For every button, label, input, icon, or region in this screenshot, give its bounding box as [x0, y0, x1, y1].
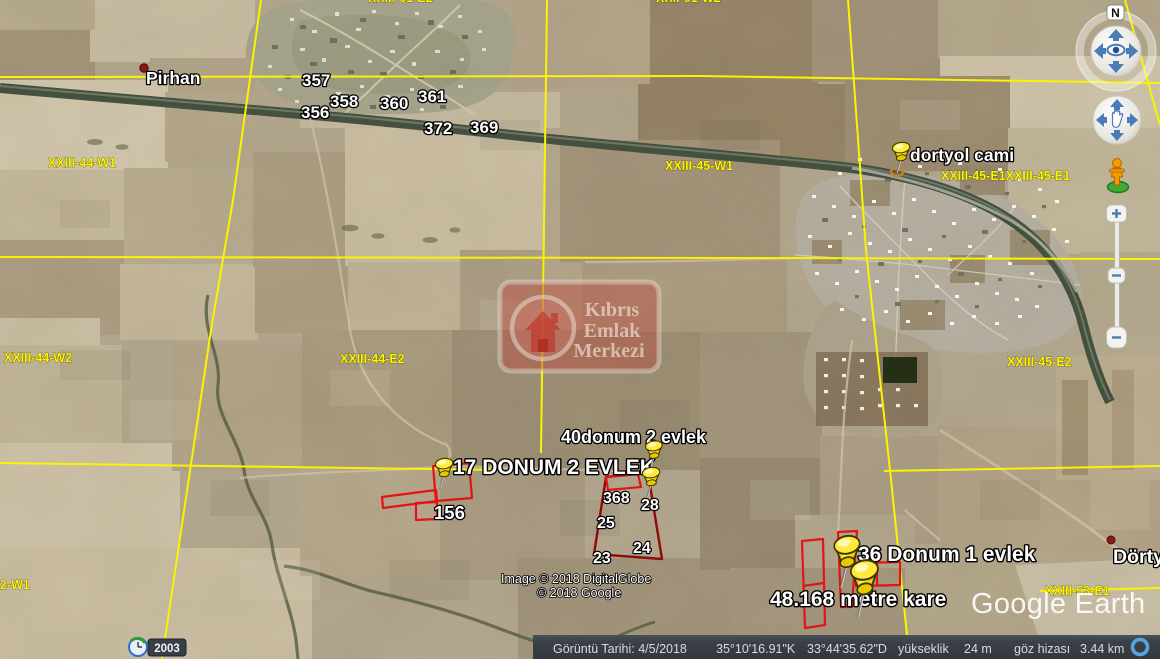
svg-text:© 2018 Google: © 2018 Google [537, 586, 621, 600]
svg-text:XXII-01-W2: XXII-01-W2 [656, 0, 721, 5]
svg-text:356: 356 [301, 103, 329, 122]
svg-text:XXIII-45-E2: XXIII-45-E2 [1007, 355, 1072, 369]
svg-text:361: 361 [418, 87, 446, 106]
svg-text:35°10'16.91"K: 35°10'16.91"K [716, 642, 796, 656]
svg-text:40donum 2 evlek: 40donum 2 evlek [561, 427, 707, 447]
svg-text:göz hizası: göz hizası [1014, 642, 1070, 656]
svg-text:yükseklik: yükseklik [898, 642, 949, 656]
svg-text:Görüntü Tarihi: 4/5/2018: Görüntü Tarihi: 4/5/2018 [553, 642, 687, 656]
svg-text:XXIII-45-E1XXIII-45-E1: XXIII-45-E1XXIII-45-E1 [941, 169, 1070, 183]
svg-text:17 DONUM 2 EVLEK: 17 DONUM 2 EVLEK [453, 456, 655, 479]
svg-text:3.44 km: 3.44 km [1080, 642, 1124, 656]
svg-text:25: 25 [597, 515, 615, 532]
svg-text:dortyol cami: dortyol cami [910, 145, 1014, 165]
svg-text:Kıbrıs: Kıbrıs [585, 299, 640, 321]
svg-text:XXIII-44-W1: XXIII-44-W1 [48, 156, 116, 170]
svg-text:XXIII-44-W2: XXIII-44-W2 [4, 351, 72, 365]
svg-text:358: 358 [330, 92, 358, 111]
svg-text:23: 23 [593, 550, 611, 567]
svg-text:Emlak: Emlak [584, 320, 642, 342]
svg-text:2003: 2003 [154, 643, 180, 655]
svg-text:Pirhan: Pirhan [146, 68, 200, 88]
svg-text:24: 24 [633, 540, 651, 557]
svg-text:XXIII-44-E2: XXIII-44-E2 [340, 352, 405, 366]
svg-text:28: 28 [641, 497, 659, 514]
svg-text:24 m: 24 m [964, 642, 992, 656]
svg-text:372: 372 [424, 119, 452, 138]
svg-text:33°44'35.62"D: 33°44'35.62"D [807, 642, 887, 656]
svg-text:Dörty: Dörty [1113, 546, 1160, 568]
svg-text:XXIII-45-W1: XXIII-45-W1 [665, 159, 733, 173]
svg-text:XXIII-01-E2: XXIII-01-E2 [368, 0, 433, 5]
svg-text:360: 360 [380, 94, 408, 113]
svg-text:156: 156 [434, 502, 465, 523]
svg-text:357: 357 [302, 71, 330, 90]
svg-text:369: 369 [470, 118, 498, 137]
svg-text:Image © 2018 DigitalGlobe: Image © 2018 DigitalGlobe [501, 572, 651, 586]
svg-text:Merkezi: Merkezi [573, 340, 645, 362]
svg-text:Google Earth: Google Earth [971, 588, 1146, 620]
svg-text:N: N [1111, 6, 1120, 20]
svg-text:36 Donum 1 evlek: 36 Donum 1 evlek [858, 543, 1036, 566]
svg-text:2-W1: 2-W1 [0, 578, 30, 592]
svg-text:368: 368 [603, 490, 630, 507]
